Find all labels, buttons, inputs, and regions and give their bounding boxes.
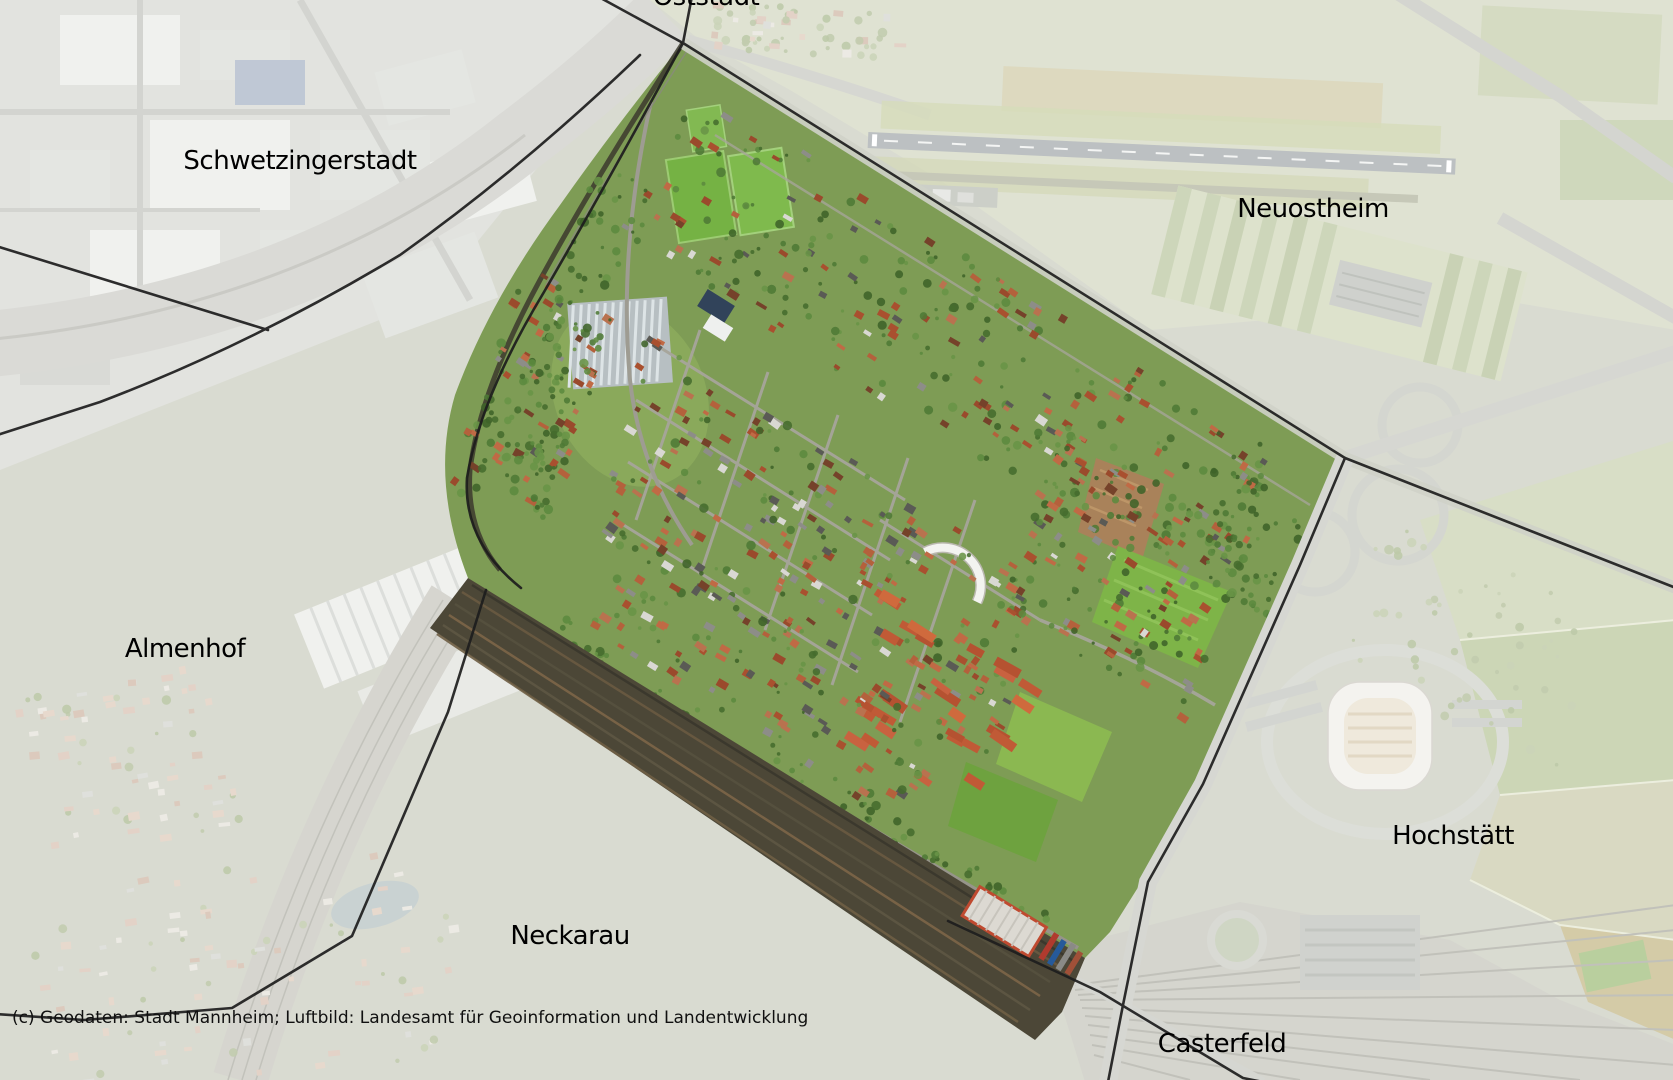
district-label-neuostheim: Neuostheim — [1237, 196, 1389, 222]
aerial-map-view: Oststadt Schwetzingerstadt Neuostheim Al… — [0, 0, 1673, 1080]
district-label-casterfeld: Casterfeld — [1158, 1031, 1286, 1057]
district-label-schwetzingerstadt: Schwetzingerstadt — [183, 148, 416, 174]
district-label-almenhof: Almenhof — [125, 636, 245, 662]
district-label-oststadt: Oststadt — [653, 0, 760, 10]
district-label-neckarau: Neckarau — [510, 923, 629, 949]
district-label-hochstaett: Hochstätt — [1392, 823, 1514, 849]
map-attribution: (c) Geodaten: Stadt Mannheim; Luftbild: … — [12, 1008, 808, 1028]
